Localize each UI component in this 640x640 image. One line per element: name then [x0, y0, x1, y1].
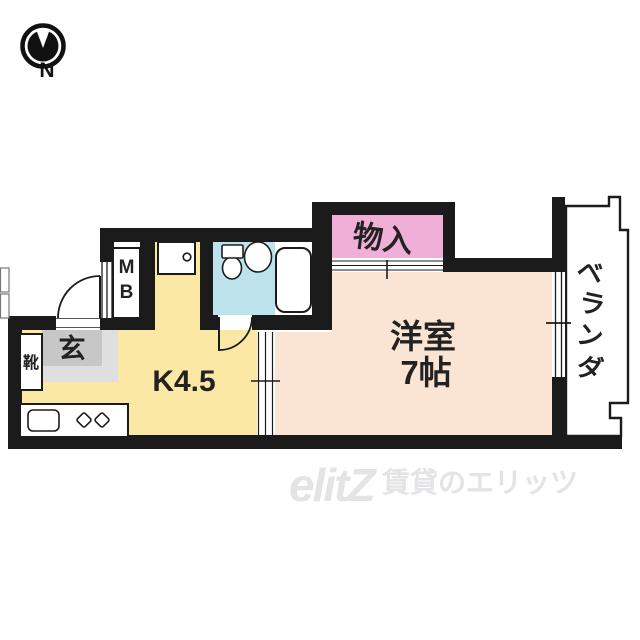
wall-segment	[252, 315, 332, 330]
north-label: N	[39, 59, 54, 82]
wall-segment	[100, 242, 114, 262]
kitchen-sink	[28, 410, 59, 431]
western-room-size-label: 7帖	[400, 354, 451, 391]
western-room-label: 洋室	[390, 318, 456, 355]
bathtub	[276, 248, 311, 312]
wall-segment	[8, 316, 56, 330]
watermark-logo: elitZ	[289, 459, 377, 511]
entrance-door	[56, 276, 100, 328]
wall-segment	[200, 315, 218, 330]
wall-segment	[312, 202, 332, 330]
exterior-structure	[1, 294, 10, 318]
faucet-icon	[183, 253, 191, 261]
compass-icon: N	[23, 26, 64, 83]
exterior-structure	[1, 268, 10, 292]
wall-segment	[140, 228, 155, 318]
wall-segment	[318, 202, 455, 215]
shoe-box-label: 靴	[23, 353, 39, 372]
wall-segment	[552, 197, 565, 272]
floor-plan-page: N	[0, 0, 640, 640]
watermark: elitZ 賃貸のエリッツ	[289, 459, 578, 511]
meter-box-label-m: M	[119, 257, 135, 278]
door-swing-arc	[58, 276, 100, 318]
wash-basin	[245, 242, 272, 272]
toilet-tank	[222, 245, 243, 258]
toilet-bowl	[223, 257, 242, 279]
kitchen-label: K4.5	[152, 365, 215, 398]
watermark-text: 賃貸のエリッツ	[381, 467, 578, 498]
wall-segment	[443, 258, 565, 272]
meter-box-label-b: B	[120, 282, 134, 303]
wall-segment	[100, 228, 318, 242]
wall-segment	[200, 242, 213, 315]
entrance-label: 玄	[59, 333, 86, 364]
meter-box-window	[100, 262, 114, 318]
floor-plan: N	[0, 0, 640, 640]
window-gap	[552, 272, 565, 377]
